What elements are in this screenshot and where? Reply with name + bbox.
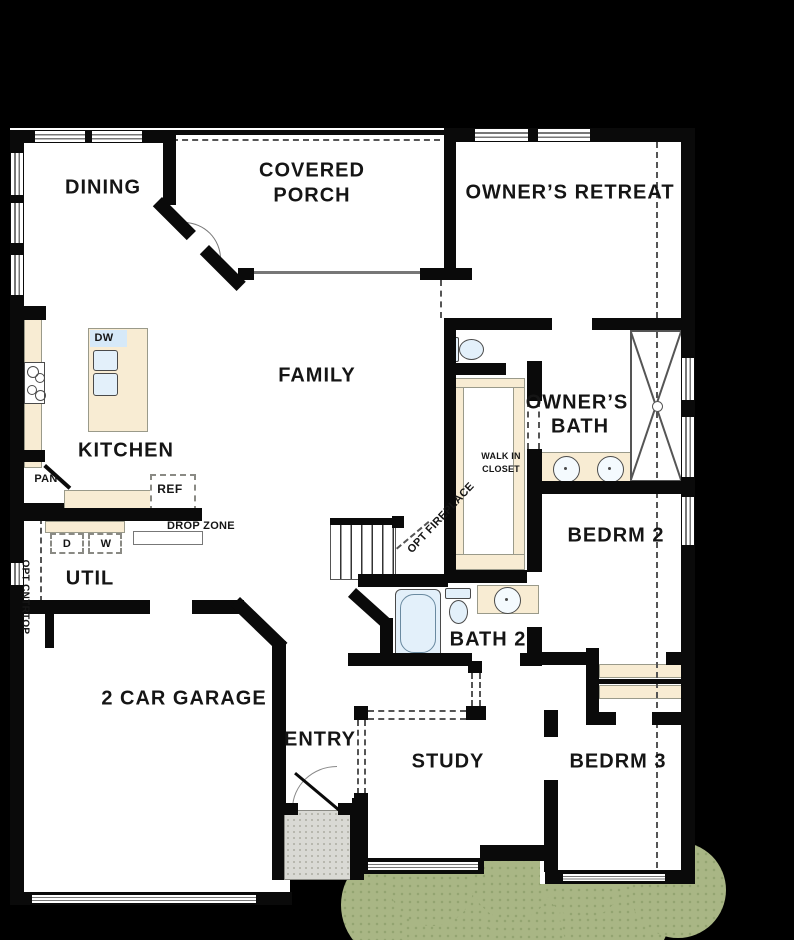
room-label-study: STUDY: [412, 751, 485, 774]
room-label-covered-porch: PORCH: [273, 185, 350, 208]
sink-drain: [564, 467, 567, 470]
closet-shelf: [599, 685, 683, 699]
window: [682, 358, 694, 400]
wall: [444, 318, 456, 576]
wall: [284, 803, 298, 815]
label-opt-countertop: OPT CNTRTOP: [20, 560, 31, 635]
wall: [444, 318, 552, 330]
label-dishwasher: DW: [95, 332, 114, 344]
study-opt-wall: [479, 673, 481, 706]
wall: [444, 570, 527, 583]
study-opt-wall: [364, 720, 366, 794]
sink-drain: [505, 598, 508, 601]
window: [682, 497, 694, 545]
closet-shelf: [452, 554, 525, 570]
room-label-bedrm3: BEDRM 3: [569, 751, 666, 774]
wall: [444, 363, 506, 375]
room-label-walk-in-closet: CLOSET: [482, 464, 520, 474]
window: [11, 153, 23, 195]
bathtub-inner: [400, 594, 436, 653]
room-label-owners-bath: OWNER’S: [526, 392, 629, 415]
wall: [480, 845, 548, 861]
room-label-kitchen: KITCHEN: [78, 440, 174, 463]
window: [11, 255, 23, 295]
wall: [586, 712, 616, 725]
wall: [544, 710, 558, 737]
window: [563, 874, 665, 881]
wall: [466, 706, 486, 720]
study-opt-wall: [368, 710, 466, 712]
window: [475, 129, 528, 141]
wall: [592, 318, 695, 330]
room-label-dining: DINING: [65, 177, 141, 200]
island-sink-fixture: [93, 373, 118, 396]
wall: [542, 481, 695, 494]
label-pantry: PAN: [34, 473, 57, 485]
wall: [380, 618, 393, 658]
room-label-util: UTIL: [66, 568, 114, 591]
room-label-bedrm2: BEDRM 2: [567, 525, 664, 548]
cooktop-burner: [35, 373, 45, 383]
drop-zone-bench: [133, 531, 203, 545]
wall: [10, 306, 46, 320]
room-label-bath2: BATH 2: [450, 629, 527, 652]
toilet-fixture: [445, 588, 471, 599]
closet-shelf: [513, 378, 525, 570]
window: [92, 131, 142, 142]
stair-newel: [392, 516, 404, 528]
label-refrigerator: REF: [157, 482, 183, 496]
label-drop-zone: DROP ZONE: [167, 520, 235, 532]
wall: [468, 661, 482, 673]
room-label-entry: ENTRY: [284, 729, 356, 752]
study-opt-wall: [471, 673, 473, 706]
wall: [354, 706, 368, 720]
wall: [352, 798, 368, 860]
floor-garage: [10, 728, 290, 905]
window: [35, 131, 85, 142]
room-label-family: FAMILY: [278, 365, 356, 388]
porch-roof-dashed-line: [172, 139, 440, 141]
closet-rod: [599, 679, 683, 684]
sink-drain: [608, 467, 611, 470]
porch-wall-dashed-connector: [440, 280, 442, 318]
cooktop-burner: [35, 390, 46, 401]
floor-plan: DINING COVERED PORCH OWNER’S RETREAT FAM…: [0, 0, 794, 940]
toilet-fixture: [449, 600, 468, 624]
room-label-covered-porch: COVERED: [259, 160, 365, 183]
shower-x-hub: [652, 401, 663, 412]
wall: [10, 130, 170, 143]
wall: [666, 652, 695, 665]
stair-rail: [330, 518, 396, 525]
window: [682, 417, 694, 477]
wall: [10, 600, 150, 614]
front-porch-slab: [284, 810, 352, 880]
closet-shelf: [452, 378, 525, 388]
closet-shelf: [599, 664, 683, 678]
wall: [544, 780, 558, 872]
room-label-owners-retreat: OWNER’S RETREAT: [465, 182, 674, 205]
room-label-garage: 2 CAR GARAGE: [101, 688, 266, 711]
porch-edge-line: [254, 271, 422, 274]
wall: [527, 449, 542, 572]
wall: [444, 130, 456, 278]
opt-countertop-dashed-line: [40, 518, 42, 602]
label-washer: W: [101, 538, 112, 550]
stairs: [330, 524, 396, 580]
wall: [358, 574, 448, 587]
window: [368, 862, 478, 870]
window: [538, 129, 590, 141]
wall: [238, 268, 254, 280]
wall: [652, 712, 695, 725]
label-dryer: D: [63, 538, 71, 550]
wall: [45, 614, 54, 648]
room-label-owners-bath: BATH: [551, 416, 609, 439]
window: [11, 203, 23, 243]
island-sink-fixture: [93, 350, 118, 371]
wall: [12, 450, 45, 462]
study-opt-wall: [368, 718, 466, 720]
wall: [163, 130, 176, 205]
wall: [348, 653, 472, 666]
garage-door: [32, 895, 256, 903]
toilet-fixture: [459, 339, 484, 360]
wall: [170, 130, 444, 135]
study-opt-wall: [357, 720, 359, 794]
wall: [272, 641, 286, 812]
room-label-walk-in-closet: WALK IN: [481, 451, 520, 461]
wall: [272, 805, 284, 880]
wall: [530, 652, 588, 665]
util-counter: [45, 521, 125, 533]
